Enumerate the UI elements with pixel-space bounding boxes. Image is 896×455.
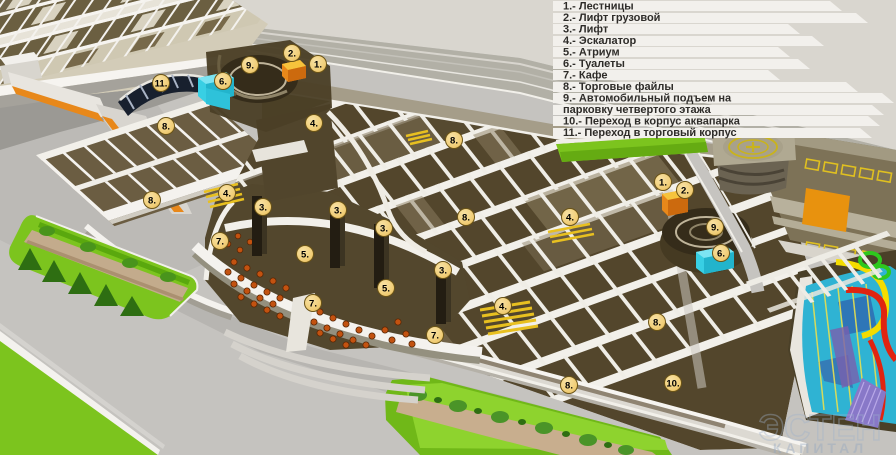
svg-text:2.- Лифт грузовой: 2.- Лифт грузовой — [563, 12, 660, 24]
svg-text:7.- Кафе: 7.- Кафе — [563, 70, 607, 82]
svg-text:6.- Туалеты: 6.- Туалеты — [563, 58, 625, 70]
svg-text:3.- Лифт: 3.- Лифт — [563, 24, 609, 36]
svg-text:8.: 8. — [450, 136, 458, 147]
svg-text:4.: 4. — [566, 213, 574, 224]
svg-text:парковку четвертого этажа: парковку четвертого этажа — [563, 104, 712, 116]
svg-text:7.: 7. — [309, 299, 317, 310]
svg-text:4.: 4. — [310, 119, 318, 130]
svg-text:8.: 8. — [148, 196, 156, 207]
svg-text:7.: 7. — [431, 331, 439, 342]
svg-text:8.: 8. — [653, 318, 661, 329]
svg-text:11.: 11. — [155, 79, 168, 90]
svg-text:1.- Лестницы: 1.- Лестницы — [563, 1, 634, 13]
svg-text:8.: 8. — [462, 213, 470, 224]
svg-text:8.- Торговые файлы: 8.- Торговые файлы — [563, 81, 674, 93]
svg-text:3.: 3. — [259, 203, 267, 214]
svg-text:3.: 3. — [380, 224, 388, 235]
svg-text:3.: 3. — [439, 266, 447, 277]
svg-text:5.: 5. — [382, 284, 390, 295]
svg-text:5.- Атриум: 5.- Атриум — [563, 47, 620, 59]
svg-text:8.: 8. — [565, 381, 573, 392]
svg-text:9.: 9. — [246, 61, 254, 72]
svg-text:2.: 2. — [288, 49, 296, 60]
svg-text:1.: 1. — [314, 60, 322, 71]
svg-text:4.: 4. — [499, 302, 507, 313]
svg-text:11.- Переход в торговый корпус: 11.- Переход в торговый корпус — [563, 127, 737, 139]
svg-text:9.- Автомобильный подъем на: 9.- Автомобильный подъем на — [563, 93, 732, 105]
svg-text:6.: 6. — [717, 249, 725, 260]
svg-text:КАПИТАЛ: КАПИТАЛ — [773, 440, 867, 455]
svg-text:10.: 10. — [666, 379, 679, 390]
svg-text:2.: 2. — [681, 186, 689, 197]
svg-text:4.: 4. — [223, 189, 231, 200]
svg-text:5.: 5. — [301, 250, 309, 261]
svg-text:1.: 1. — [659, 178, 667, 189]
svg-text:9.: 9. — [711, 223, 719, 234]
svg-text:10.- Переход в корпус аквапарк: 10.- Переход в корпус аквапарка — [563, 116, 741, 128]
svg-text:6.: 6. — [219, 77, 227, 88]
svg-text:7.: 7. — [216, 237, 224, 248]
svg-text:3.: 3. — [334, 206, 342, 217]
svg-text:4.- Эскалатор: 4.- Эскалатор — [563, 35, 637, 47]
svg-text:8.: 8. — [162, 122, 170, 133]
